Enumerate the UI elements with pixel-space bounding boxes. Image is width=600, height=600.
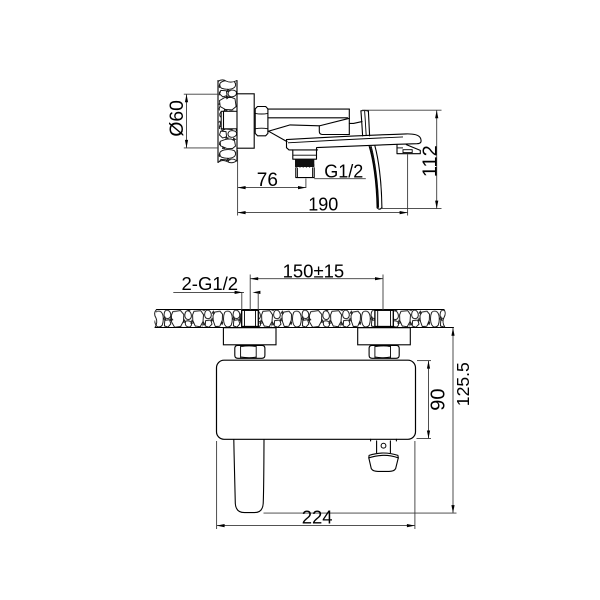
- svg-text:G1/2: G1/2: [324, 162, 363, 182]
- svg-text:125.5: 125.5: [453, 362, 473, 406]
- svg-text:2-G1/2: 2-G1/2: [182, 273, 239, 294]
- svg-text:112: 112: [419, 145, 441, 177]
- svg-text:150±15: 150±15: [283, 261, 345, 282]
- svg-text:76: 76: [257, 170, 278, 191]
- svg-text:190: 190: [308, 194, 338, 214]
- svg-text:Ø60: Ø60: [167, 100, 188, 136]
- svg-text:90: 90: [428, 389, 450, 411]
- svg-text:224: 224: [302, 506, 333, 527]
